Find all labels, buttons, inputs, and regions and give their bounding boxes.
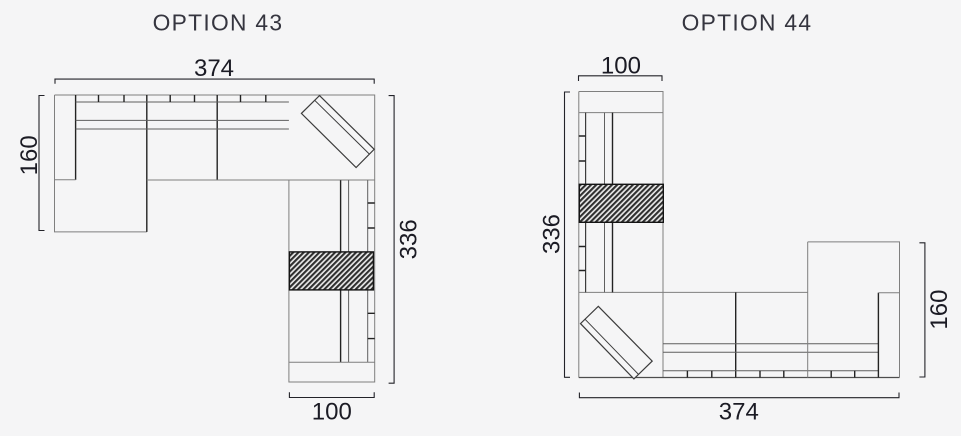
svg-text:OPTION 44: OPTION 44: [682, 10, 813, 36]
svg-text:374: 374: [719, 398, 759, 425]
svg-text:100: 100: [312, 399, 352, 426]
svg-text:OPTION 43: OPTION 43: [153, 10, 284, 36]
svg-text:336: 336: [395, 219, 422, 259]
svg-text:100: 100: [601, 52, 641, 79]
svg-text:160: 160: [926, 290, 953, 330]
svg-text:160: 160: [16, 135, 43, 175]
svg-text:336: 336: [539, 214, 566, 254]
svg-text:374: 374: [194, 55, 234, 82]
